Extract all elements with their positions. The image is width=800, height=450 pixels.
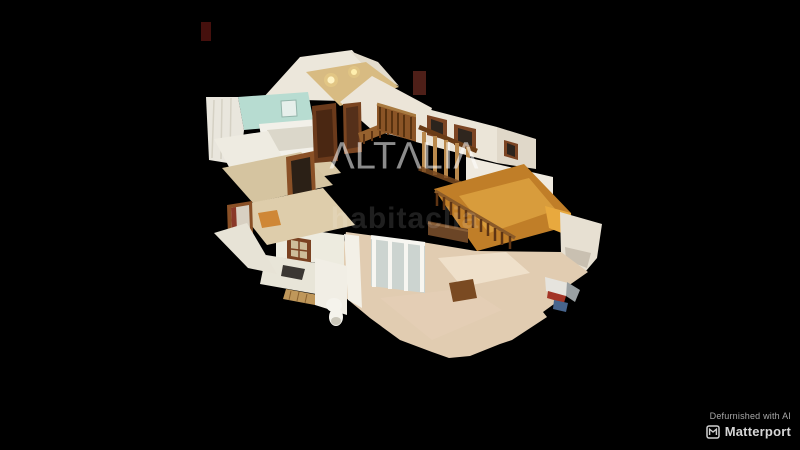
matterport-m-icon	[706, 425, 720, 439]
living-floor-section	[340, 221, 588, 358]
small-bath-section	[315, 258, 347, 326]
agency-watermark: ΛLTΛLIΛ	[329, 136, 478, 179]
matterport-wordmark: Matterport	[725, 424, 791, 439]
viewer-canvas[interactable]: ΛLTΛLIΛ habitaclia Defurnished with AI M…	[0, 0, 800, 450]
defurnished-label: Defurnished with AI	[706, 411, 791, 421]
chimney-left	[201, 22, 211, 41]
matterport-brand[interactable]: Matterport	[706, 424, 791, 439]
habitaclia-watermark: habitaclia	[331, 202, 479, 236]
attribution: Defurnished with AI Matterport	[706, 411, 791, 439]
